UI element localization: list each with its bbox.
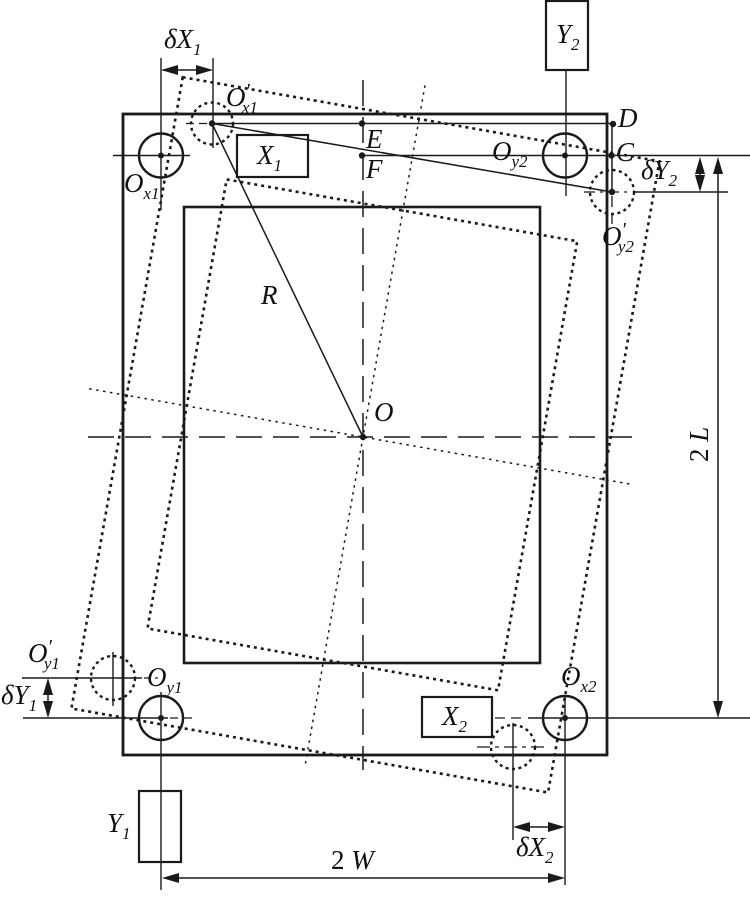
label-delta-x2: δX2 <box>516 834 554 866</box>
stage-outline <box>123 114 607 755</box>
radius-line-r <box>212 124 363 438</box>
label-origin: O <box>374 399 394 426</box>
label-o-prime-y2: O′y2 <box>602 220 634 255</box>
e-point-marker <box>359 120 365 126</box>
two-w-right-arrowhead <box>548 873 565 883</box>
label-o-x1: Ox1 <box>124 170 160 202</box>
label-two-l: 2 L <box>686 427 713 462</box>
label-o-y2: Oy2 <box>492 138 528 170</box>
two-l-down-arrowhead <box>713 701 723 718</box>
label-o-x2: Ox2 <box>561 663 597 695</box>
ox2-center-point <box>562 715 568 721</box>
oy2-center-point <box>562 153 568 159</box>
label-f-point: F <box>366 156 383 183</box>
label-y2-sensor: Y2 <box>556 21 580 53</box>
label-o-y1: Oy1 <box>147 664 183 696</box>
delta-x2-left-arrowhead <box>513 822 530 832</box>
oy1-center-point <box>158 715 164 721</box>
delta-x1-right-arrowhead <box>196 65 213 75</box>
stage-yaw-error-diagram: δX1 O′x1 X1 E F Oy2 D C δY2 O′y2 Y2 Ox1 … <box>0 0 750 897</box>
label-d-point: D <box>618 105 638 132</box>
delta-y1-down-arrowhead <box>43 701 53 718</box>
label-o-prime-x1: O′x1 <box>226 81 258 116</box>
delta-y1-up-arrowhead <box>43 678 53 695</box>
delta-x1-left-arrowhead <box>161 65 178 75</box>
label-delta-y1: δY1 <box>1 682 37 714</box>
label-c-point: C <box>616 139 634 166</box>
d-point-marker <box>610 121 616 127</box>
label-o-prime-y1: O′y1 <box>28 637 60 672</box>
label-delta-y2: δY2 <box>641 157 677 189</box>
c-point-marker <box>608 152 614 158</box>
label-x2-sensor: X2 <box>442 703 467 735</box>
delta-x2-right-arrowhead <box>548 822 565 832</box>
ox1-center-point <box>158 153 164 159</box>
y1-sensor-box <box>139 791 181 862</box>
oprimex1-point <box>209 120 215 126</box>
label-e-point: E <box>366 126 383 153</box>
origin-point <box>360 434 366 440</box>
label-x1-sensor: X1 <box>257 142 282 174</box>
label-delta-x1: δX1 <box>164 26 202 58</box>
delta-y2-down-arrowhead <box>695 175 705 192</box>
label-radius: R <box>261 282 278 309</box>
oprimey2-point <box>609 189 615 195</box>
label-two-w: 2 W <box>331 847 374 874</box>
delta-y2-up-arrowhead <box>695 157 705 174</box>
two-w-left-arrowhead <box>162 873 179 883</box>
two-l-up-arrowhead <box>713 157 723 174</box>
label-y1-sensor: Y1 <box>107 810 131 842</box>
f-point-marker <box>359 152 365 158</box>
